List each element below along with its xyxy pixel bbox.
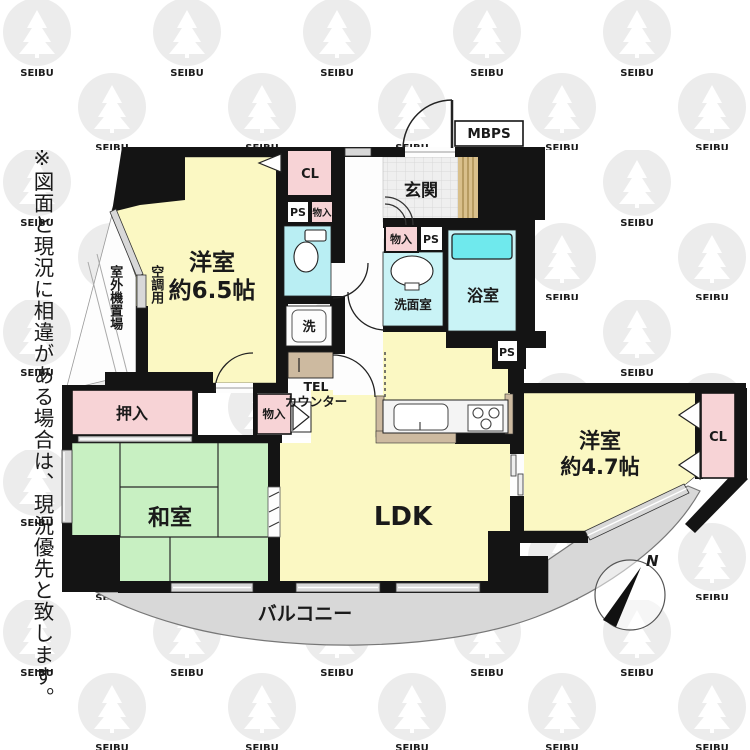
balcony-label: バルコニー bbox=[258, 603, 353, 625]
floor-plan-drawing: SEIBU SEIBU bbox=[0, 0, 750, 750]
mbps-label: MBPS bbox=[467, 126, 510, 142]
kitchen-sink-icon bbox=[394, 404, 448, 430]
room47-label: 洋室 bbox=[579, 429, 621, 453]
senmen-room bbox=[383, 252, 443, 326]
toilet-room bbox=[284, 226, 331, 296]
bath-label: 浴室 bbox=[467, 286, 499, 305]
senmen-label: 洗面室 bbox=[394, 297, 432, 312]
compass-north-label: N bbox=[646, 552, 659, 570]
ps-label-3: PS bbox=[499, 346, 515, 359]
genkan-label: 玄関 bbox=[404, 180, 438, 201]
tel-label-2: カウンター bbox=[285, 394, 348, 409]
bathtub-icon bbox=[452, 234, 512, 259]
ac-note-line1: 空調用 bbox=[149, 265, 163, 365]
room65-label: 洋室 bbox=[189, 249, 235, 276]
ps-label-1: PS bbox=[290, 206, 306, 219]
room47-size-label: 約4.7帖 bbox=[560, 455, 639, 479]
ldk-room47-sliding-door bbox=[510, 454, 524, 496]
meter-box-strip bbox=[458, 157, 478, 222]
monoire-label-1: 物入 bbox=[312, 207, 332, 219]
washitsu-sliding-door bbox=[268, 487, 280, 537]
ldk-floor-left bbox=[278, 443, 333, 583]
floor-plan-page: SEIBU SEIBU bbox=[0, 0, 750, 750]
bath-room bbox=[448, 230, 516, 331]
stove-icon bbox=[468, 405, 503, 431]
disclaimer-note: ※図面と現況に相違がある場合は、現況優先と致します。 bbox=[27, 146, 57, 616]
outdoor-ac-note: 空調用 室外機置場 bbox=[94, 265, 189, 365]
laundry-label: 洗 bbox=[302, 319, 315, 335]
ps-label-2: PS bbox=[423, 233, 439, 246]
monoire-label-3: 物入 bbox=[263, 407, 286, 421]
oshiire-label: 押入 bbox=[116, 404, 148, 423]
cl-label-top: CL bbox=[301, 167, 319, 182]
sink-icon bbox=[391, 256, 433, 286]
monoire-label-2: 物入 bbox=[390, 232, 412, 246]
tel-label-1: TEL bbox=[303, 379, 328, 394]
ac-note-line2: 室外機置場 bbox=[108, 265, 122, 365]
toilet-tank-icon bbox=[305, 230, 326, 241]
ldk-label: LDK bbox=[374, 502, 433, 532]
washitsu-label: 和室 bbox=[148, 505, 192, 531]
tel-counter bbox=[288, 352, 333, 378]
cl-label-right: CL bbox=[709, 430, 727, 445]
toilet-bowl-icon bbox=[294, 242, 318, 272]
